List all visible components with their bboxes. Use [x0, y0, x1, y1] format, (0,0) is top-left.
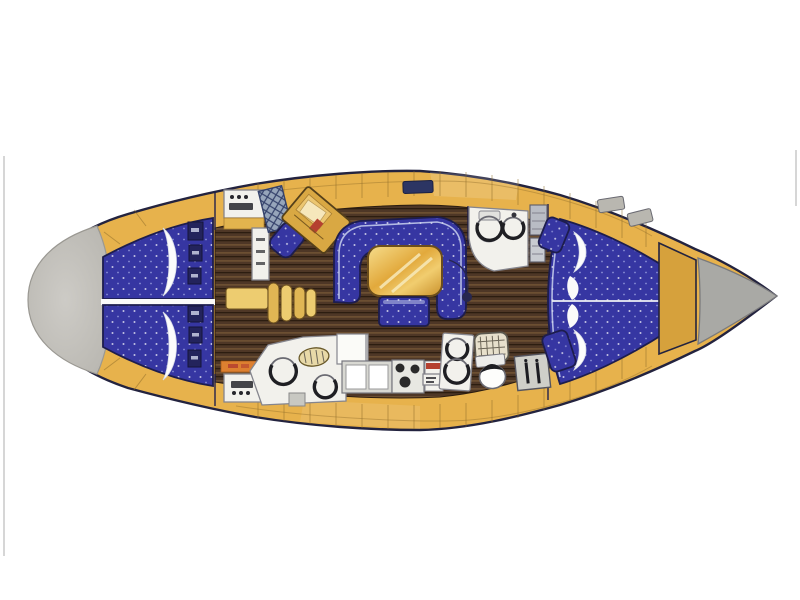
fixture-dot: [239, 391, 243, 395]
stove-burner: [411, 365, 420, 374]
step: [268, 283, 279, 323]
step: [294, 287, 305, 319]
aft-head-port: [224, 190, 264, 229]
fixture-dot: [230, 195, 234, 199]
step: [306, 289, 316, 317]
fixture-dot: [244, 195, 248, 199]
step-landing: [226, 288, 268, 309]
table-pedestal: [462, 292, 472, 302]
red-label: [426, 363, 441, 369]
stove-burner: [400, 377, 411, 388]
locker-latch: [191, 311, 199, 315]
floor-plan-canvas: [0, 0, 800, 600]
label-mark: [426, 381, 434, 383]
sink-basin-glyph: [229, 203, 253, 210]
fixture-dot: [237, 195, 241, 199]
yacht-layout-diagram: [0, 0, 800, 600]
label-mark: [426, 377, 436, 379]
fridge-top: [337, 334, 366, 364]
forward-head: [469, 205, 547, 271]
sink-basin: [346, 365, 366, 389]
hanging-locker: [514, 353, 550, 390]
label-mark: [228, 364, 238, 368]
salon-table: [368, 246, 442, 296]
stove-burner: [396, 364, 405, 373]
small-label: [423, 374, 440, 385]
faucet-icon: [512, 213, 517, 218]
shelf-line: [256, 238, 265, 241]
step: [281, 285, 292, 321]
fixture-dot: [232, 391, 236, 395]
locker-latch: [191, 274, 198, 278]
companionway-hatch: [403, 180, 433, 193]
hanging-locker-box: [514, 353, 550, 390]
locker-latch: [191, 228, 199, 232]
anchor-locker: [659, 243, 696, 354]
locker-latch: [192, 251, 199, 255]
label-mark: [241, 364, 249, 368]
wet-locker: [252, 228, 269, 280]
bench-piping: [383, 300, 425, 304]
shelf-line: [256, 262, 265, 265]
fixture-dot: [246, 391, 250, 395]
locker-latch: [192, 333, 199, 337]
sink-basin: [369, 365, 388, 389]
locker-latch: [191, 356, 198, 360]
sink-basin-glyph: [231, 381, 253, 388]
shelf-line: [256, 250, 265, 253]
trash-bin: [289, 393, 305, 406]
